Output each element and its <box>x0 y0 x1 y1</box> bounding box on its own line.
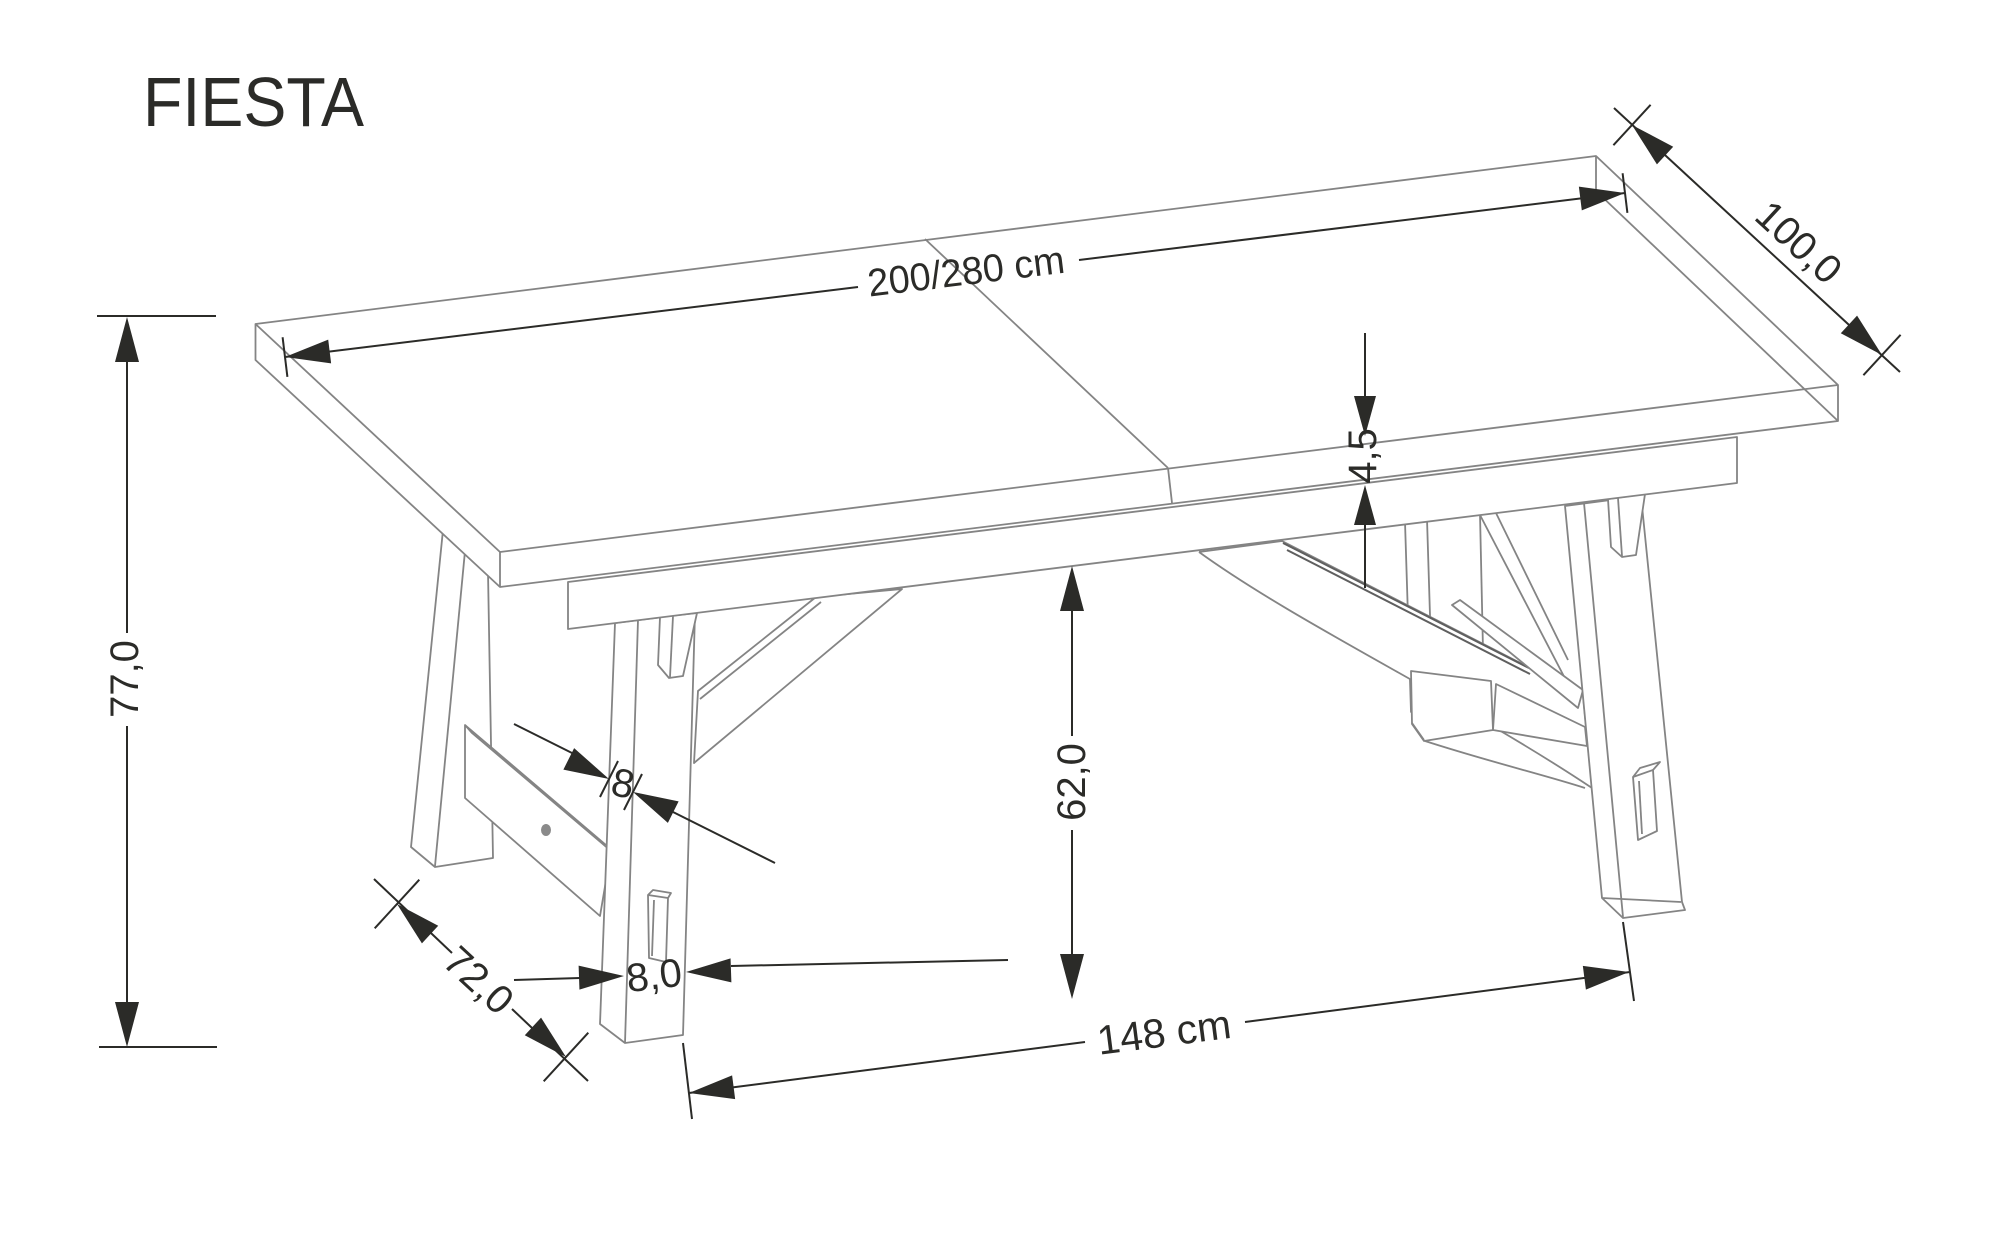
svg-text:77,0: 77,0 <box>103 640 147 718</box>
svg-text:FIESTA: FIESTA <box>143 63 364 141</box>
svg-text:8,0: 8,0 <box>624 951 685 1001</box>
svg-text:4,5: 4,5 <box>1341 428 1385 484</box>
svg-text:62,0: 62,0 <box>1050 743 1094 821</box>
